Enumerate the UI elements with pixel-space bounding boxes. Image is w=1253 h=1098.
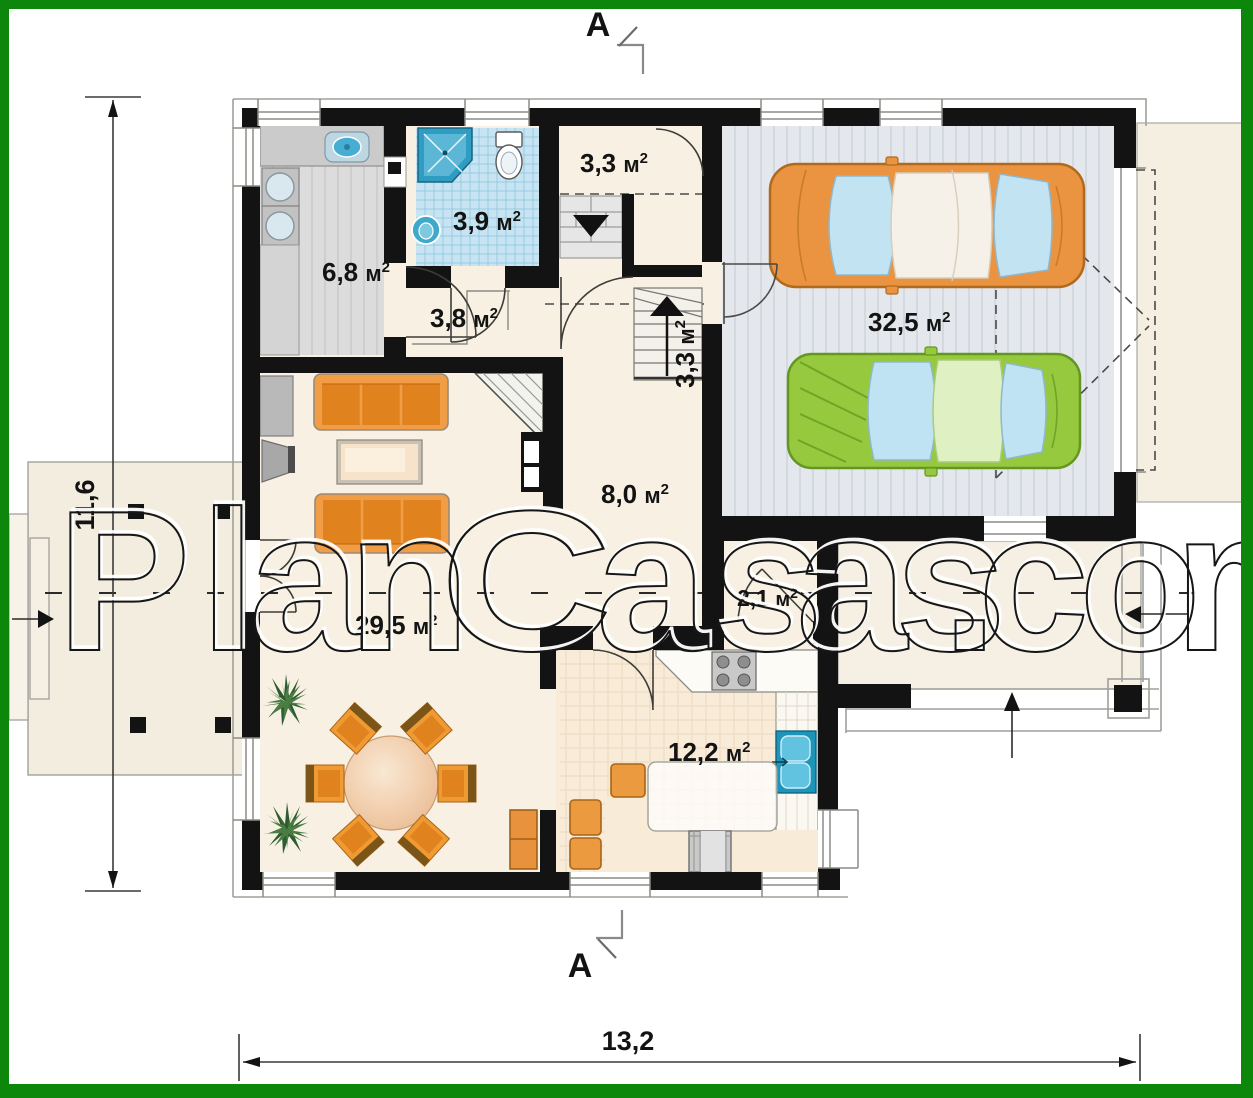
svg-text:C: C xyxy=(440,470,612,693)
svg-text:Plan: Plan xyxy=(57,470,470,693)
svg-text:3,3 м2: 3,3 м2 xyxy=(670,320,700,388)
svg-text:A: A xyxy=(586,6,611,44)
svg-text:asas.com: asas.com xyxy=(596,470,1253,693)
svg-text:12,2 м2: 12,2 м2 xyxy=(668,737,750,767)
svg-text:6,8 м2: 6,8 м2 xyxy=(322,257,390,287)
svg-text:3,9 м2: 3,9 м2 xyxy=(453,206,521,236)
svg-text:A: A xyxy=(568,947,593,985)
svg-text:13,2: 13,2 xyxy=(602,1026,655,1056)
svg-text:3,8 м2: 3,8 м2 xyxy=(430,303,498,333)
svg-text:32,5 м2: 32,5 м2 xyxy=(868,307,950,337)
svg-text:3,3 м2: 3,3 м2 xyxy=(580,148,648,178)
